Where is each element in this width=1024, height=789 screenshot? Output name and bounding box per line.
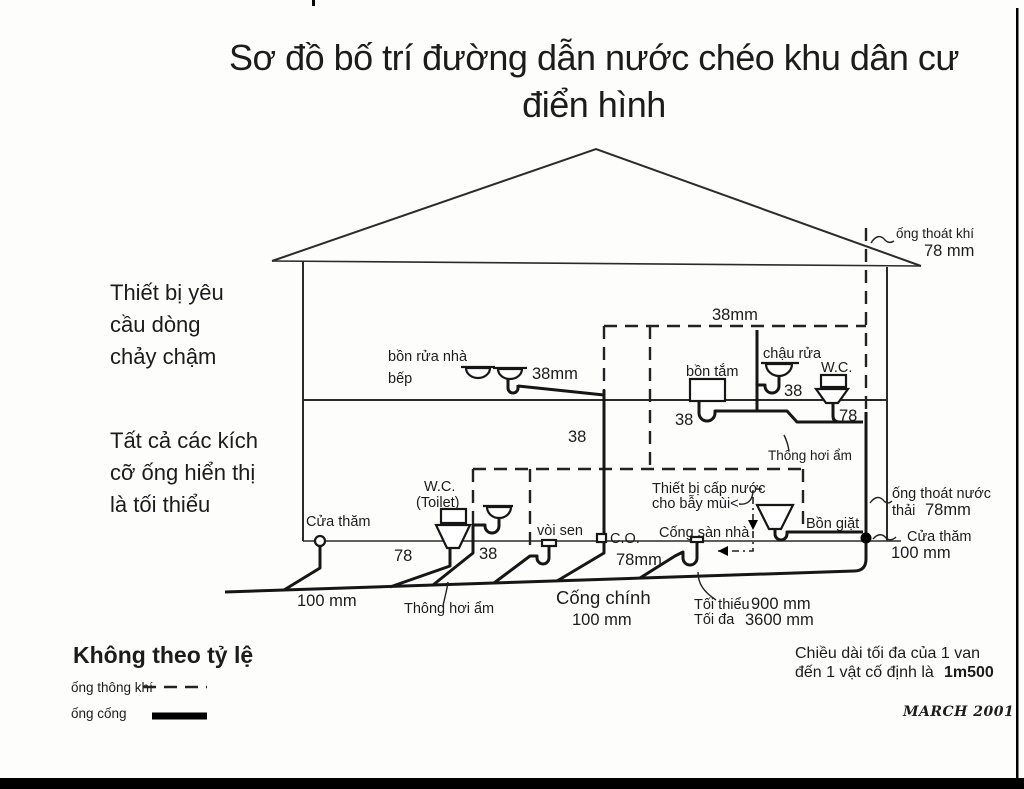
- svg-text:là tối thiểu: là tối thiểu: [110, 492, 210, 517]
- label-main-sewer: Cống chính: [556, 587, 651, 608]
- cleanout-left-icon: [315, 536, 325, 546]
- label-floor-drain-size: 78mm: [616, 551, 662, 569]
- label-bathtub: bồn tắm: [686, 363, 738, 380]
- label-wet-vent-lower: Thông hơi ẩm: [404, 601, 494, 617]
- label-toilet-size: 78: [394, 547, 412, 565]
- basin-upper-icon: [761, 363, 799, 376]
- label-trap-primer-1: Thiết bị cấp nước: [652, 481, 766, 497]
- label-basin-upper: chậu rửa: [763, 346, 822, 362]
- legend-title: Không theo tỷ lệ: [73, 642, 253, 668]
- footer-date: MARCH 2001: [902, 704, 1014, 720]
- label-cleanout-right: Cửa thăm: [907, 529, 972, 545]
- label-toilet: (Toilet): [416, 495, 460, 511]
- label-waste-pipe-size: 78mm: [925, 501, 971, 519]
- scanned-plumbing-diagram-page: Sơ đồ bố trí đường dẫn nước chéo khu dân…: [0, 0, 1024, 789]
- label-wc-lower: W.C.: [424, 479, 455, 495]
- label-vent-pipe: ống thoát khí: [896, 226, 974, 241]
- note-slow-flow: Thiết bị yêu cầu dòng chảy chậm: [110, 280, 224, 369]
- kitchen-sink-icon: [461, 367, 527, 379]
- page-title-line1: Sơ đồ bố trí đường dẫn nước chéo khu dân…: [229, 37, 959, 78]
- laundry-tub-icon: [757, 505, 793, 529]
- svg-text:Thiết bị yêu: Thiết bị yêu: [110, 280, 224, 305]
- shower-drain-icon: [542, 540, 556, 546]
- co-icon: [597, 534, 606, 542]
- legend-vent-label: ống thông khí: [71, 680, 153, 695]
- label-waste-pipe-2: thải: [892, 503, 915, 519]
- svg-text:cỡ ống hiển thị: cỡ ống hiển thị: [110, 460, 255, 485]
- label-waste-pipe-1: ống thoát nước: [892, 486, 991, 502]
- label-floor-drain: Cống sàn nhà: [659, 525, 750, 541]
- footer-note-value: 1m500: [944, 664, 994, 681]
- label-vent-pipe-size: 78 mm: [924, 242, 974, 260]
- label-basin-size: 38: [784, 382, 802, 400]
- svg-text:cầu dòng: cầu dòng: [110, 312, 201, 337]
- label-trap-primer-2: cho bẫy mùi<: [652, 495, 739, 512]
- label-vent-size: 38mm: [712, 306, 758, 324]
- basin-lower-icon: [483, 506, 513, 518]
- legend: Không theo tỷ lệ ống thông khí ống cống: [71, 642, 253, 721]
- label-wc-upper: W.C.: [821, 360, 852, 376]
- label-laundry: Bồn giặt: [806, 516, 859, 532]
- label-lav-size: 38: [479, 545, 497, 563]
- legend-sewer-label: ống cống: [71, 706, 127, 721]
- footer-note-2: đến 1 vật cố định là: [795, 664, 934, 681]
- label-main-sewer-size: 100 mm: [572, 611, 632, 629]
- footer-note-1: Chiều dài tối đa của 1 van: [795, 645, 980, 662]
- label-kitchen-sink-2: bếp: [388, 371, 412, 387]
- note-min-size: Tất cả các kích cỡ ống hiển thị là tối t…: [110, 428, 258, 517]
- label-wet-vent-upper: Thông hơi ẩm: [768, 448, 852, 463]
- label-tub-size: 38: [675, 411, 693, 429]
- cleanout-right-icon: [861, 533, 872, 544]
- label-max: Tối đa: [694, 612, 735, 628]
- svg-text:chảy chậm: chảy chậm: [110, 344, 216, 369]
- label-shower: vòi sen: [537, 523, 583, 539]
- label-cleanout-left: Cửa thăm: [306, 514, 371, 530]
- label-kitchen-pipe-size: 38mm: [532, 365, 578, 383]
- toilet-icon: [436, 509, 470, 548]
- label-kitchen-sink-1: bồn rửa nhà: [388, 349, 468, 365]
- page-title-line2: điển hình: [522, 84, 666, 125]
- label-stack-size: 38: [568, 428, 586, 446]
- bathtub-icon: [690, 379, 725, 401]
- wc-upper-icon: [816, 375, 848, 403]
- label-cleanout-right-size: 100 mm: [891, 544, 951, 562]
- svg-text:Tất cả các kích: Tất cả các kích: [110, 428, 258, 453]
- label-exit-size: 100 mm: [297, 592, 357, 610]
- label-max-value: 3600 mm: [745, 611, 814, 629]
- house-outline: [272, 149, 921, 541]
- label-wc-size: 78: [839, 407, 857, 425]
- label-min: Tối thiểu: [694, 597, 750, 613]
- label-co: C.O.: [610, 531, 640, 547]
